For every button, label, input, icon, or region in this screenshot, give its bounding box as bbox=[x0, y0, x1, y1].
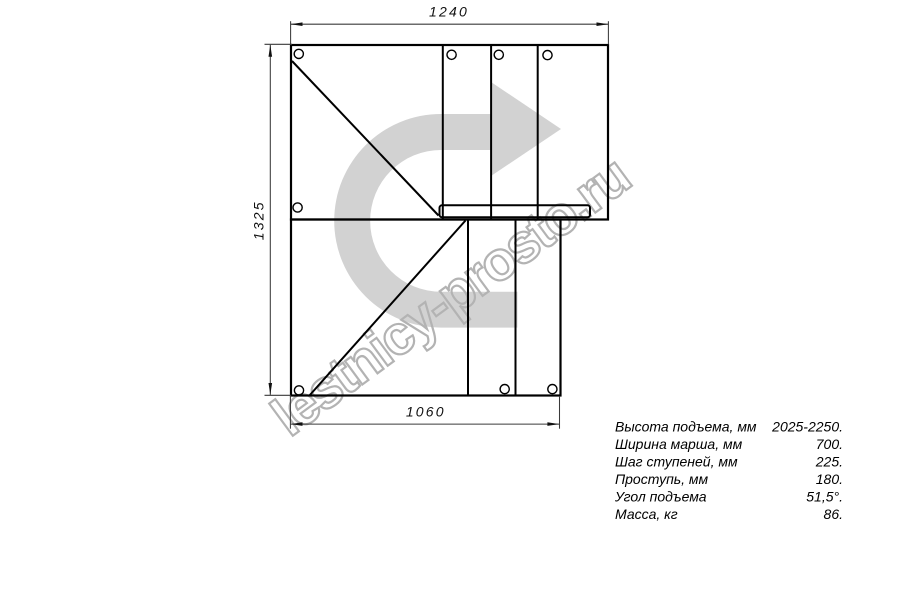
svg-text:51,5°.: 51,5°. bbox=[806, 489, 843, 505]
svg-text:86.: 86. bbox=[824, 506, 843, 522]
svg-text:180.: 180. bbox=[816, 471, 843, 487]
svg-text:Угол подъема: Угол подъема bbox=[614, 489, 707, 505]
svg-text:Масса, кг: Масса, кг bbox=[615, 506, 678, 522]
svg-text:Высота подъема, мм: Высота подъема, мм bbox=[615, 419, 757, 435]
svg-text:Ширина марша, мм: Ширина марша, мм bbox=[615, 436, 743, 452]
svg-text:Проступь, мм: Проступь, мм bbox=[615, 471, 709, 487]
svg-text:225.: 225. bbox=[815, 454, 843, 470]
svg-text:700.: 700. bbox=[816, 436, 843, 452]
svg-text:1240: 1240 bbox=[429, 4, 469, 20]
svg-text:lestnicy-prosto.ru: lestnicy-prosto.ru bbox=[260, 145, 640, 448]
svg-text:1060: 1060 bbox=[406, 404, 446, 420]
svg-text:1325: 1325 bbox=[251, 200, 267, 240]
svg-text:2025-2250.: 2025-2250. bbox=[771, 419, 843, 435]
svg-text:Шаг ступеней, мм: Шаг ступеней, мм bbox=[615, 454, 738, 470]
